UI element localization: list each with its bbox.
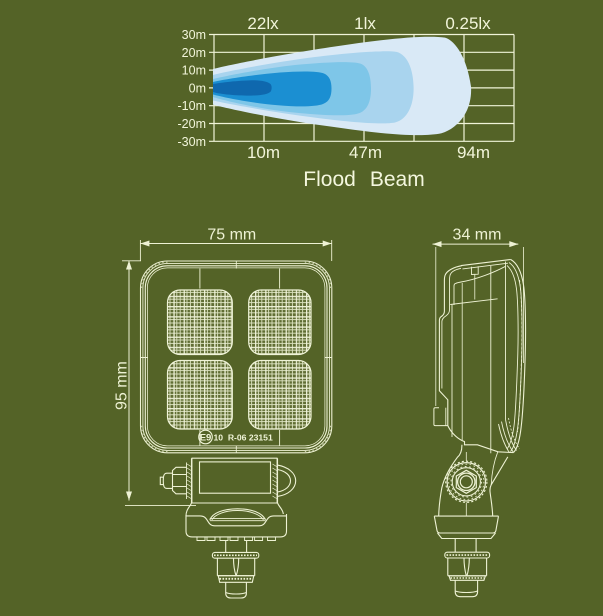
svg-text:Flood Beam: Flood Beam [303, 168, 424, 191]
svg-text:-30m: -30m [178, 135, 206, 149]
svg-text:22lx: 22lx [247, 14, 279, 33]
svg-text:0m: 0m [189, 81, 206, 95]
svg-text:-10m: -10m [178, 99, 206, 113]
svg-text:10m: 10m [182, 64, 206, 78]
svg-text:34 mm: 34 mm [453, 226, 502, 243]
svg-text:10 R-06 23151: 10 R-06 23151 [214, 432, 273, 442]
svg-text:10m: 10m [247, 143, 280, 162]
svg-text:0.25lx: 0.25lx [445, 14, 491, 33]
svg-text:30m: 30m [182, 28, 206, 42]
svg-text:-20m: -20m [178, 117, 206, 131]
svg-text:75 mm: 75 mm [207, 226, 256, 243]
svg-text:E9: E9 [200, 433, 212, 444]
svg-text:20m: 20m [182, 46, 206, 60]
svg-text:1lx: 1lx [354, 14, 376, 33]
svg-text:94m: 94m [457, 143, 490, 162]
svg-text:95 mm: 95 mm [113, 361, 130, 410]
svg-text:47m: 47m [349, 143, 382, 162]
